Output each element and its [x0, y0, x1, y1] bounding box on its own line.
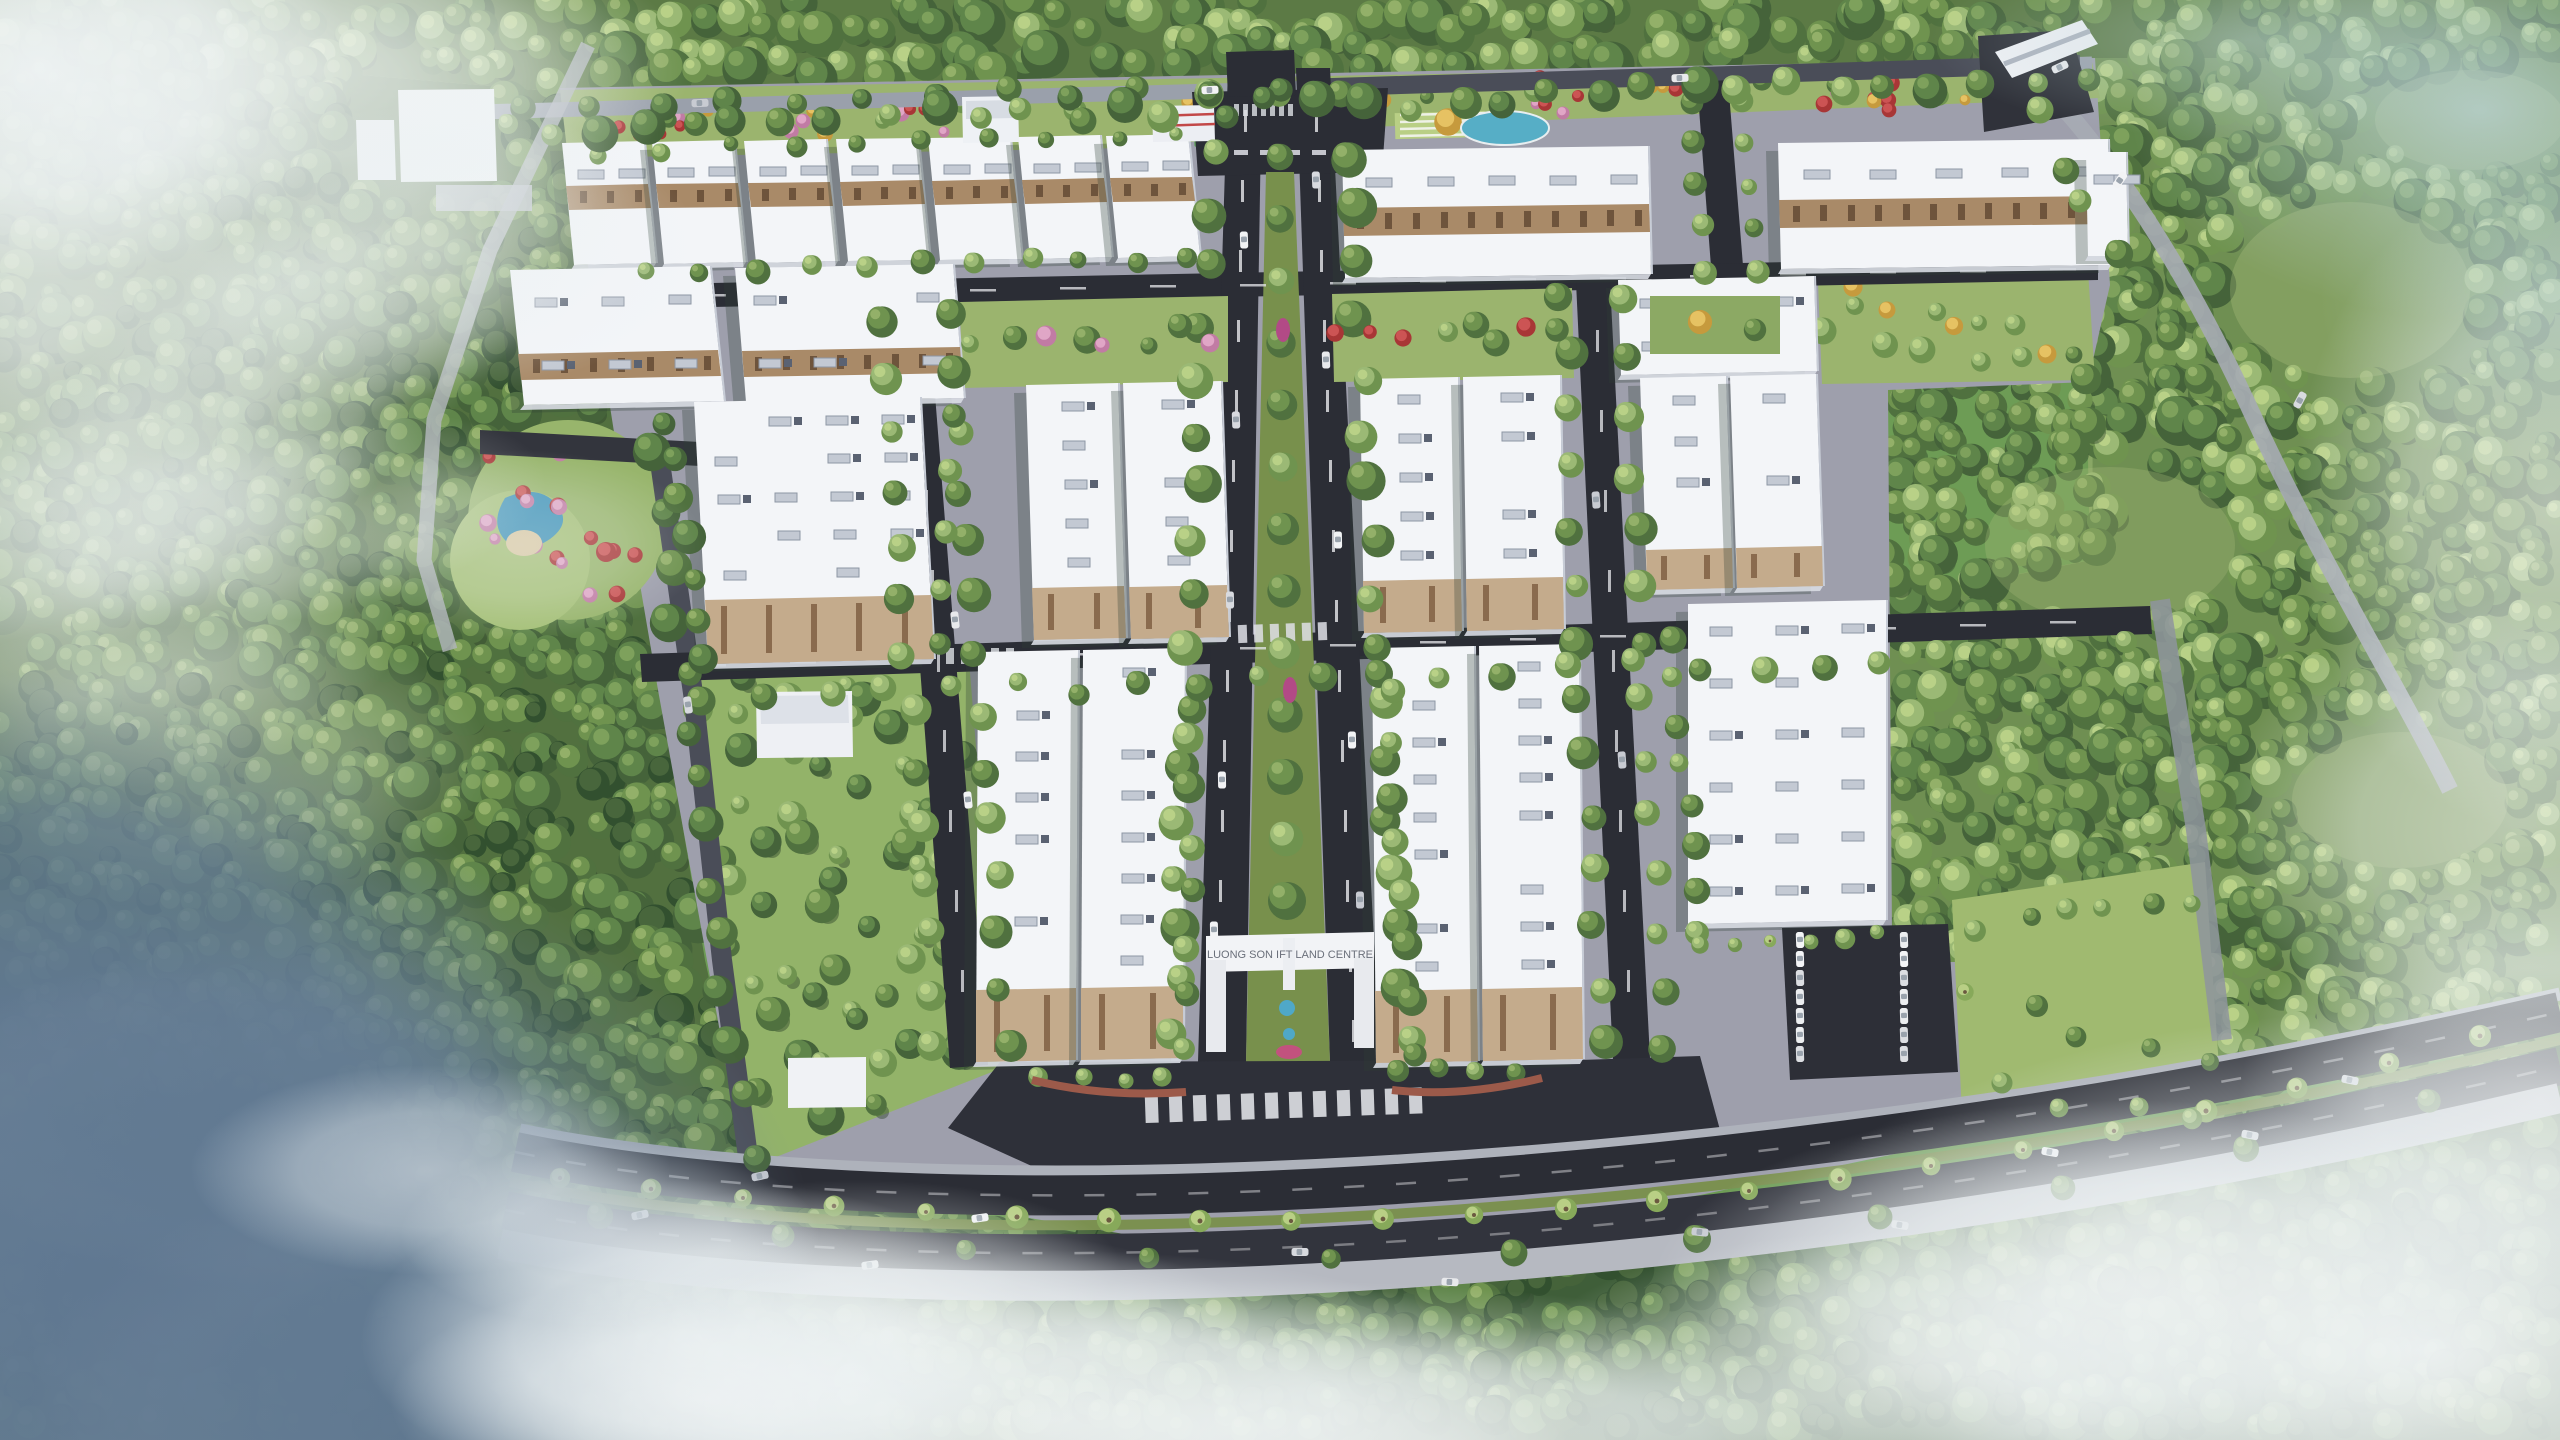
- svg-text:LUONG SON IFT LAND CENTRE: LUONG SON IFT LAND CENTRE: [1207, 949, 1373, 961]
